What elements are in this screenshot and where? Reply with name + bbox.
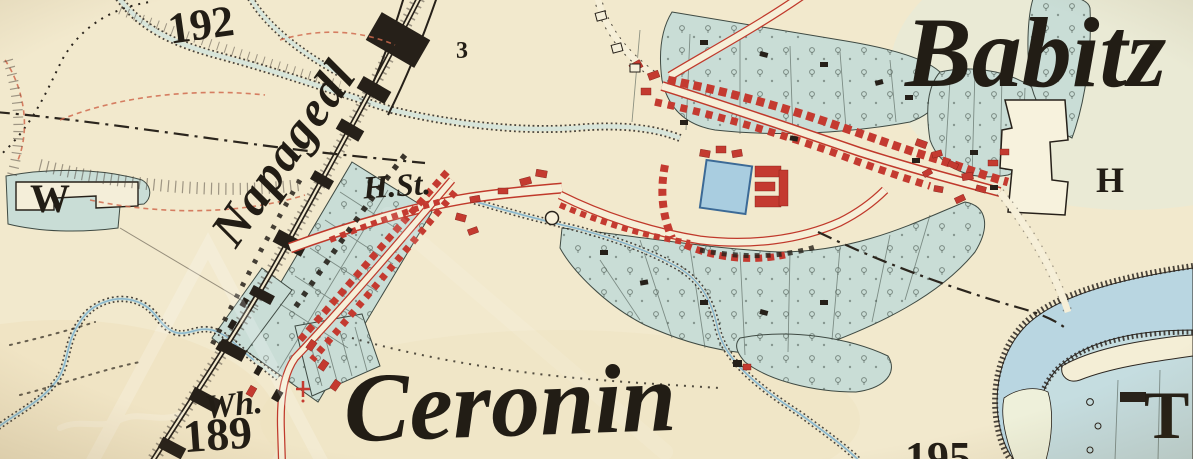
river-orchard-patch — [1003, 389, 1052, 459]
village-pond — [700, 160, 752, 214]
place-label-ceronin: Ceronin — [342, 344, 678, 459]
elevation-192: 192 — [165, 0, 237, 54]
map-viewport[interactable]: Babitz Ceronin Napagedl H.St. Wh. 189 19… — [0, 0, 1193, 459]
village-well — [546, 212, 559, 225]
place-label-babitz: Babitz — [904, 0, 1166, 108]
letter-h: H — [1096, 160, 1124, 200]
number-3: 3 — [456, 38, 468, 64]
mill-building — [733, 360, 742, 367]
letter-w: W — [30, 176, 70, 221]
station-label-hst: H.St. — [361, 165, 432, 206]
place-label-t-partial: T — [1144, 377, 1189, 453]
map-canvas[interactable]: Babitz Ceronin Napagedl H.St. Wh. 189 19… — [0, 0, 1193, 459]
elevation-189: 189 — [181, 406, 253, 459]
elevation-195-partial: 195 — [905, 433, 971, 459]
